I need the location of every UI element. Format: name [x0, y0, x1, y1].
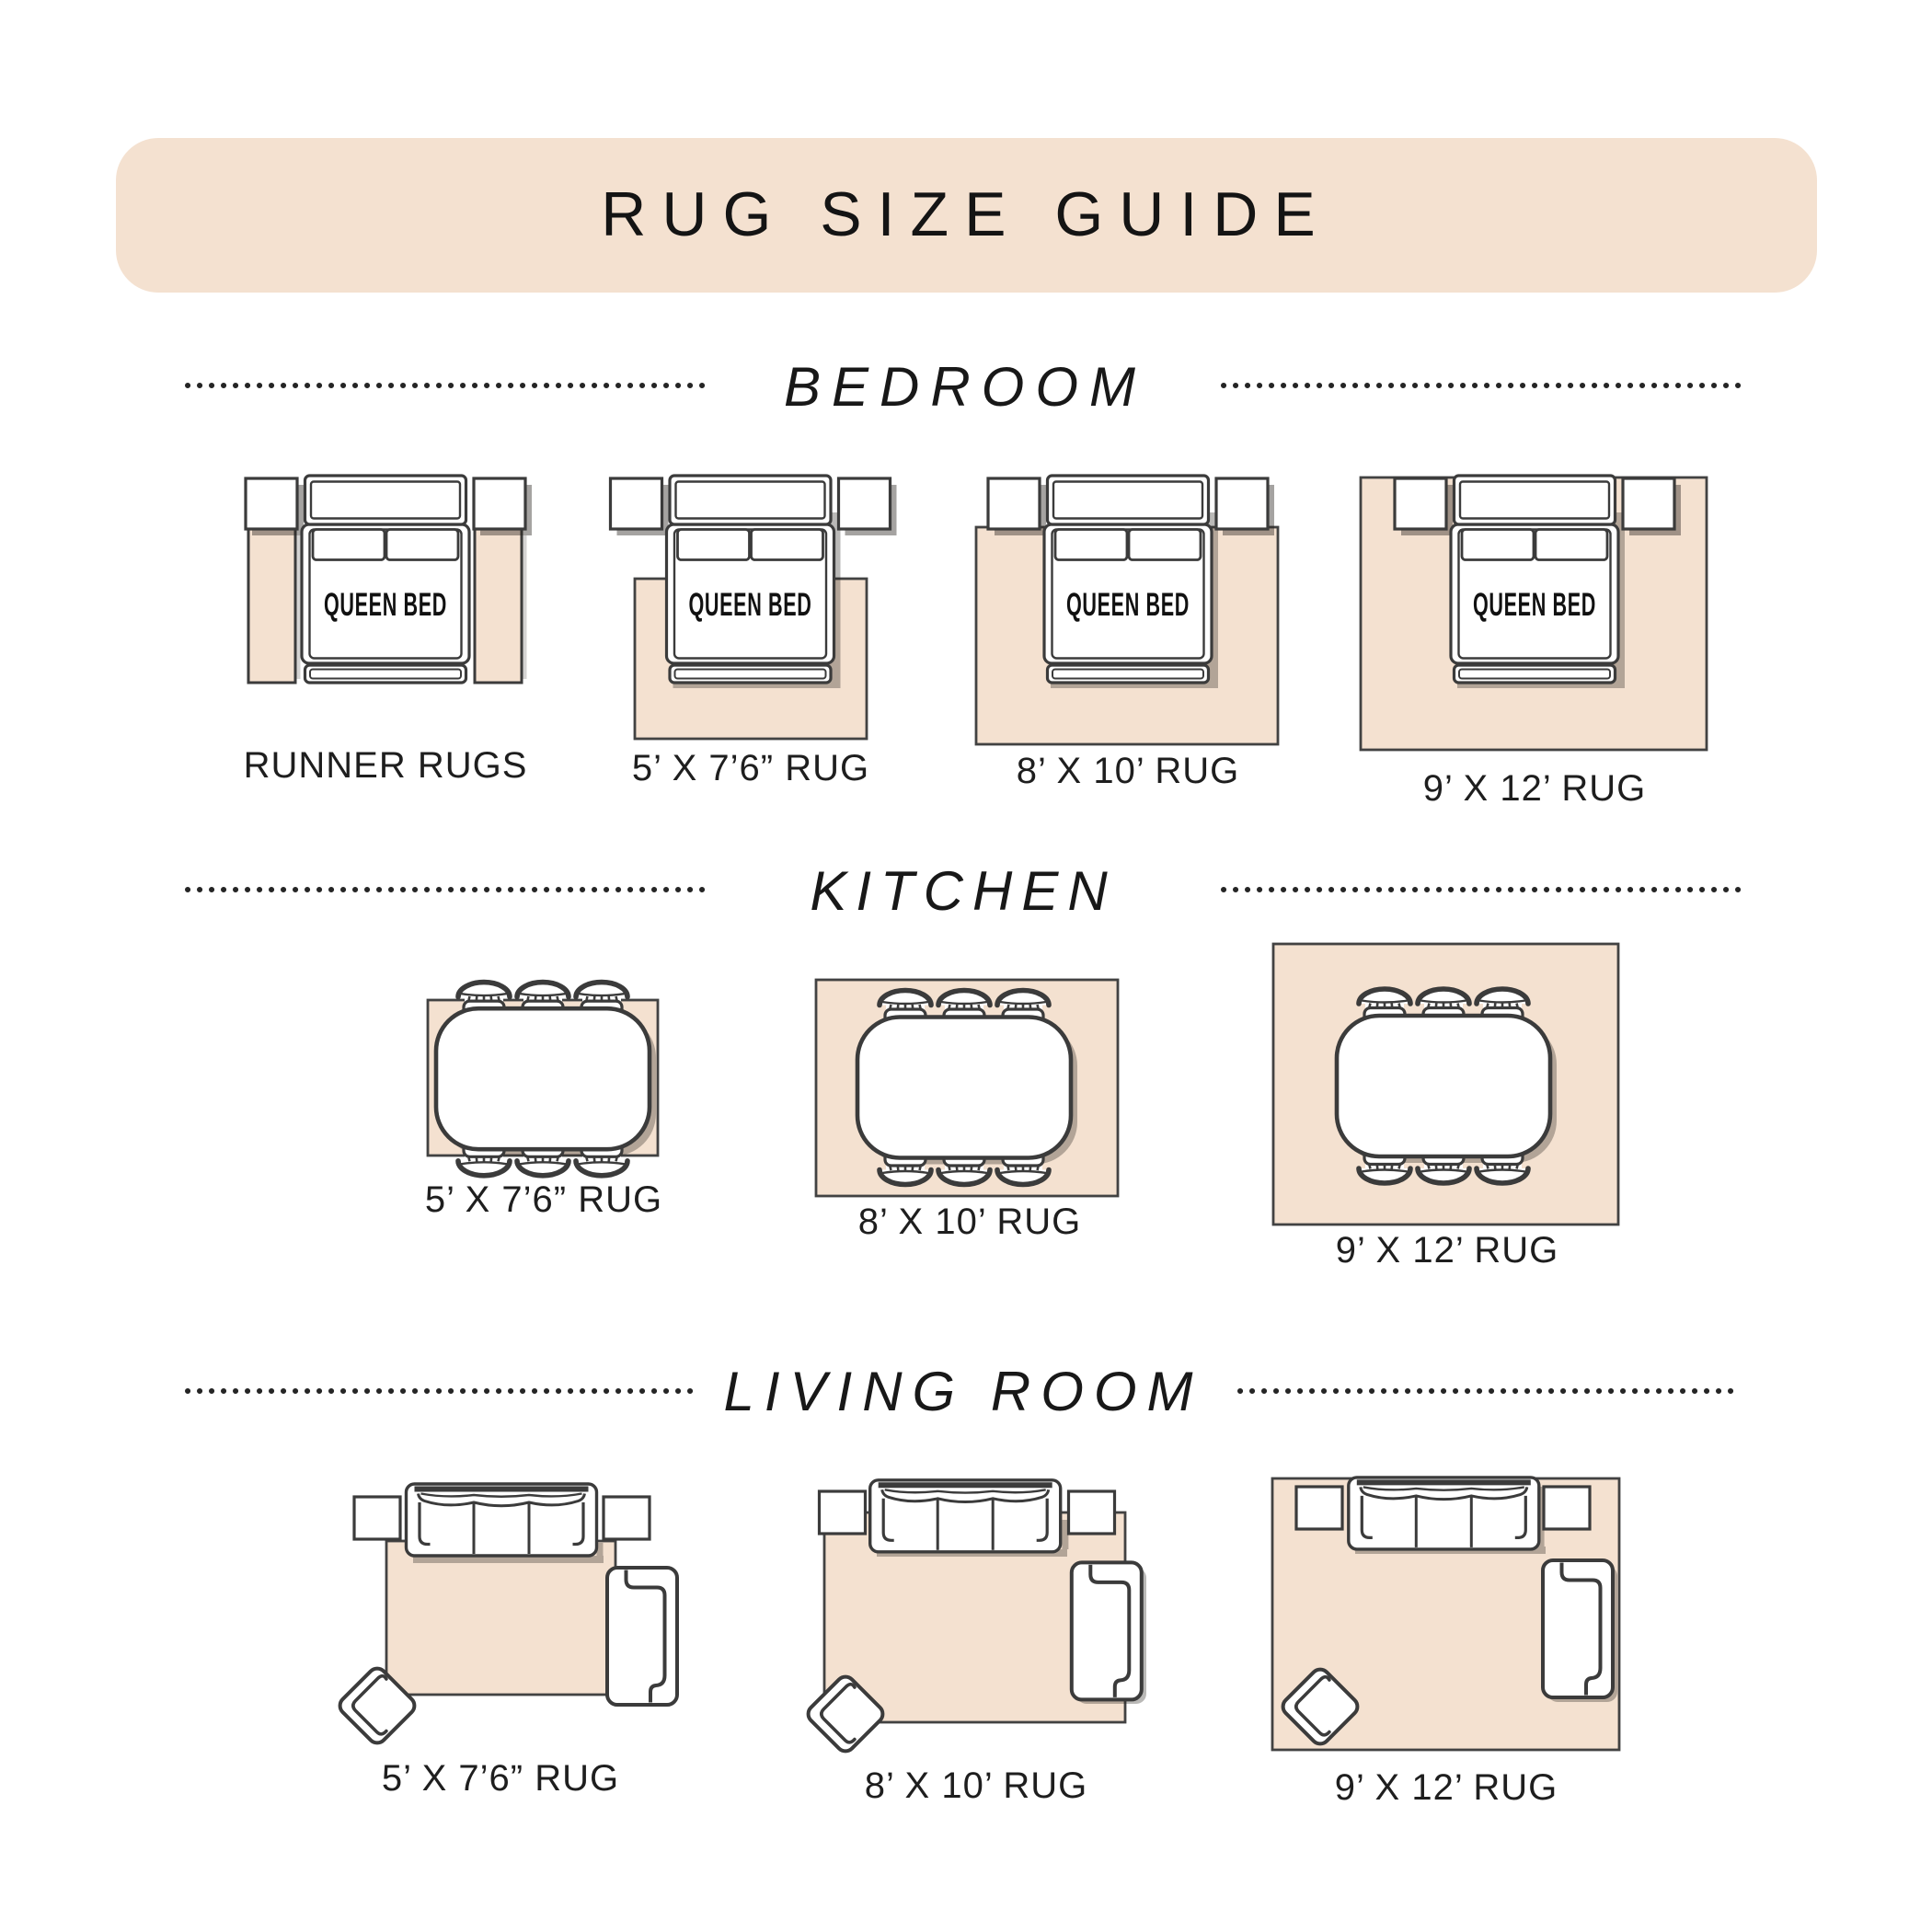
svg-text:RUG SIZE GUIDE: RUG SIZE GUIDE — [601, 179, 1330, 249]
svg-text:BEDROOM: BEDROOM — [784, 356, 1146, 418]
svg-text:RUNNER RUGS: RUNNER RUGS — [244, 745, 528, 786]
svg-text:8’ X 10’ RUG: 8’ X 10’ RUG — [865, 1765, 1087, 1806]
svg-text:9’ X 12’ RUG: 9’ X 12’ RUG — [1336, 1230, 1558, 1271]
svg-text:9’ X 12’ RUG: 9’ X 12’ RUG — [1335, 1767, 1558, 1808]
svg-text:LIVING ROOM: LIVING ROOM — [723, 1361, 1202, 1422]
svg-text:9’ X 12’ RUG: 9’ X 12’ RUG — [1423, 768, 1646, 809]
svg-text:KITCHEN: KITCHEN — [810, 860, 1116, 922]
svg-text:8’ X 10’ RUG: 8’ X 10’ RUG — [1017, 751, 1239, 791]
svg-text:5’ X 7’6” RUG: 5’ X 7’6” RUG — [382, 1758, 619, 1799]
svg-text:5’ X 7’6” RUG: 5’ X 7’6” RUG — [425, 1179, 662, 1220]
svg-text:8’ X 10’ RUG: 8’ X 10’ RUG — [858, 1202, 1081, 1242]
svg-text:5’ X 7’6” RUG: 5’ X 7’6” RUG — [632, 748, 869, 788]
